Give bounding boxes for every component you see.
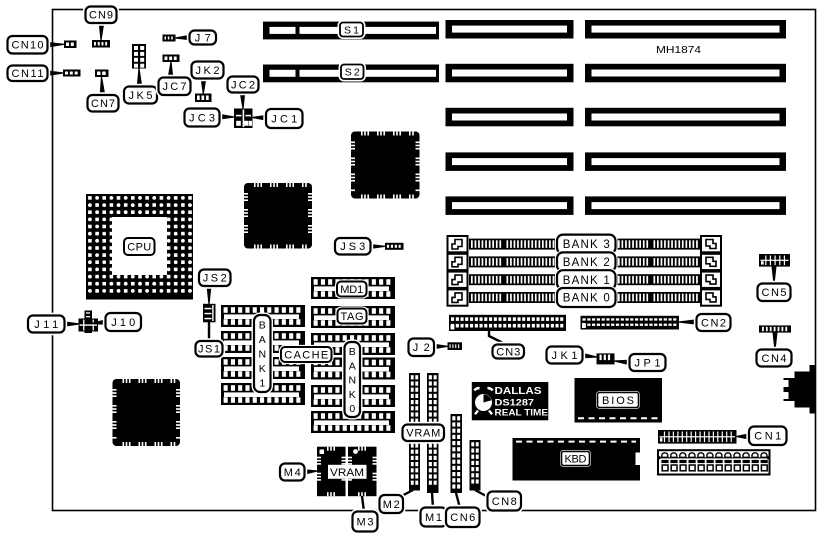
svg-text:MH1874: MH1874 bbox=[656, 44, 701, 56]
svg-text:VRAM: VRAM bbox=[330, 467, 364, 479]
svg-text:JS1: JS1 bbox=[198, 344, 220, 356]
svg-text:JP1: JP1 bbox=[635, 358, 661, 370]
svg-text:JK5: JK5 bbox=[129, 90, 153, 102]
svg-text:JK1: JK1 bbox=[552, 350, 578, 362]
svg-text:DS1287: DS1287 bbox=[495, 397, 535, 407]
svg-text:BANK 1: BANK 1 bbox=[563, 275, 610, 287]
svg-text:JS3: JS3 bbox=[340, 241, 365, 253]
svg-text:BIOS: BIOS bbox=[602, 395, 634, 407]
svg-text:KBD: KBD bbox=[565, 454, 587, 466]
svg-text:J10: J10 bbox=[111, 317, 135, 329]
svg-text:MD1: MD1 bbox=[340, 284, 363, 296]
svg-text:BANK 2: BANK 2 bbox=[563, 257, 610, 269]
svg-text:CN2: CN2 bbox=[701, 318, 726, 330]
svg-text:J11: J11 bbox=[34, 319, 58, 331]
svg-text:M1: M1 bbox=[425, 512, 442, 524]
svg-text:REAL TIME: REAL TIME bbox=[495, 408, 549, 418]
svg-text:JK2: JK2 bbox=[196, 65, 220, 77]
svg-text:M4: M4 bbox=[284, 467, 301, 479]
svg-text:CN1: CN1 bbox=[754, 431, 781, 443]
svg-text:CN3: CN3 bbox=[496, 347, 520, 359]
svg-text:CN10: CN10 bbox=[12, 40, 44, 52]
svg-text:JC7: JC7 bbox=[163, 81, 187, 93]
svg-text:M3: M3 bbox=[357, 517, 374, 529]
svg-text:CN4: CN4 bbox=[762, 353, 787, 365]
svg-text:CN6: CN6 bbox=[450, 512, 475, 524]
svg-text:CN7: CN7 bbox=[91, 98, 115, 110]
svg-text:CN8: CN8 bbox=[492, 496, 517, 508]
svg-text:BANK 0: BANK 0 bbox=[563, 293, 610, 305]
svg-text:JC3: JC3 bbox=[189, 113, 215, 125]
svg-text:JC1: JC1 bbox=[271, 114, 297, 126]
svg-text:M2: M2 bbox=[383, 499, 400, 511]
svg-text:CACHE: CACHE bbox=[284, 350, 328, 362]
svg-text:CPU: CPU bbox=[127, 242, 151, 254]
svg-text:TAG: TAG bbox=[341, 311, 364, 323]
svg-text:CN9: CN9 bbox=[89, 10, 113, 22]
svg-text:JC2: JC2 bbox=[231, 80, 255, 92]
svg-text:CN11: CN11 bbox=[12, 68, 44, 80]
svg-text:DALLAS: DALLAS bbox=[495, 385, 542, 397]
svg-text:CN5: CN5 bbox=[762, 287, 787, 299]
svg-text:BANK 3: BANK 3 bbox=[563, 239, 610, 251]
svg-text:BANK0: BANK0 bbox=[348, 346, 356, 415]
svg-text:JS2: JS2 bbox=[203, 273, 227, 285]
svg-text:VRAM: VRAM bbox=[406, 428, 440, 440]
svg-text:BANK1: BANK1 bbox=[258, 319, 266, 389]
